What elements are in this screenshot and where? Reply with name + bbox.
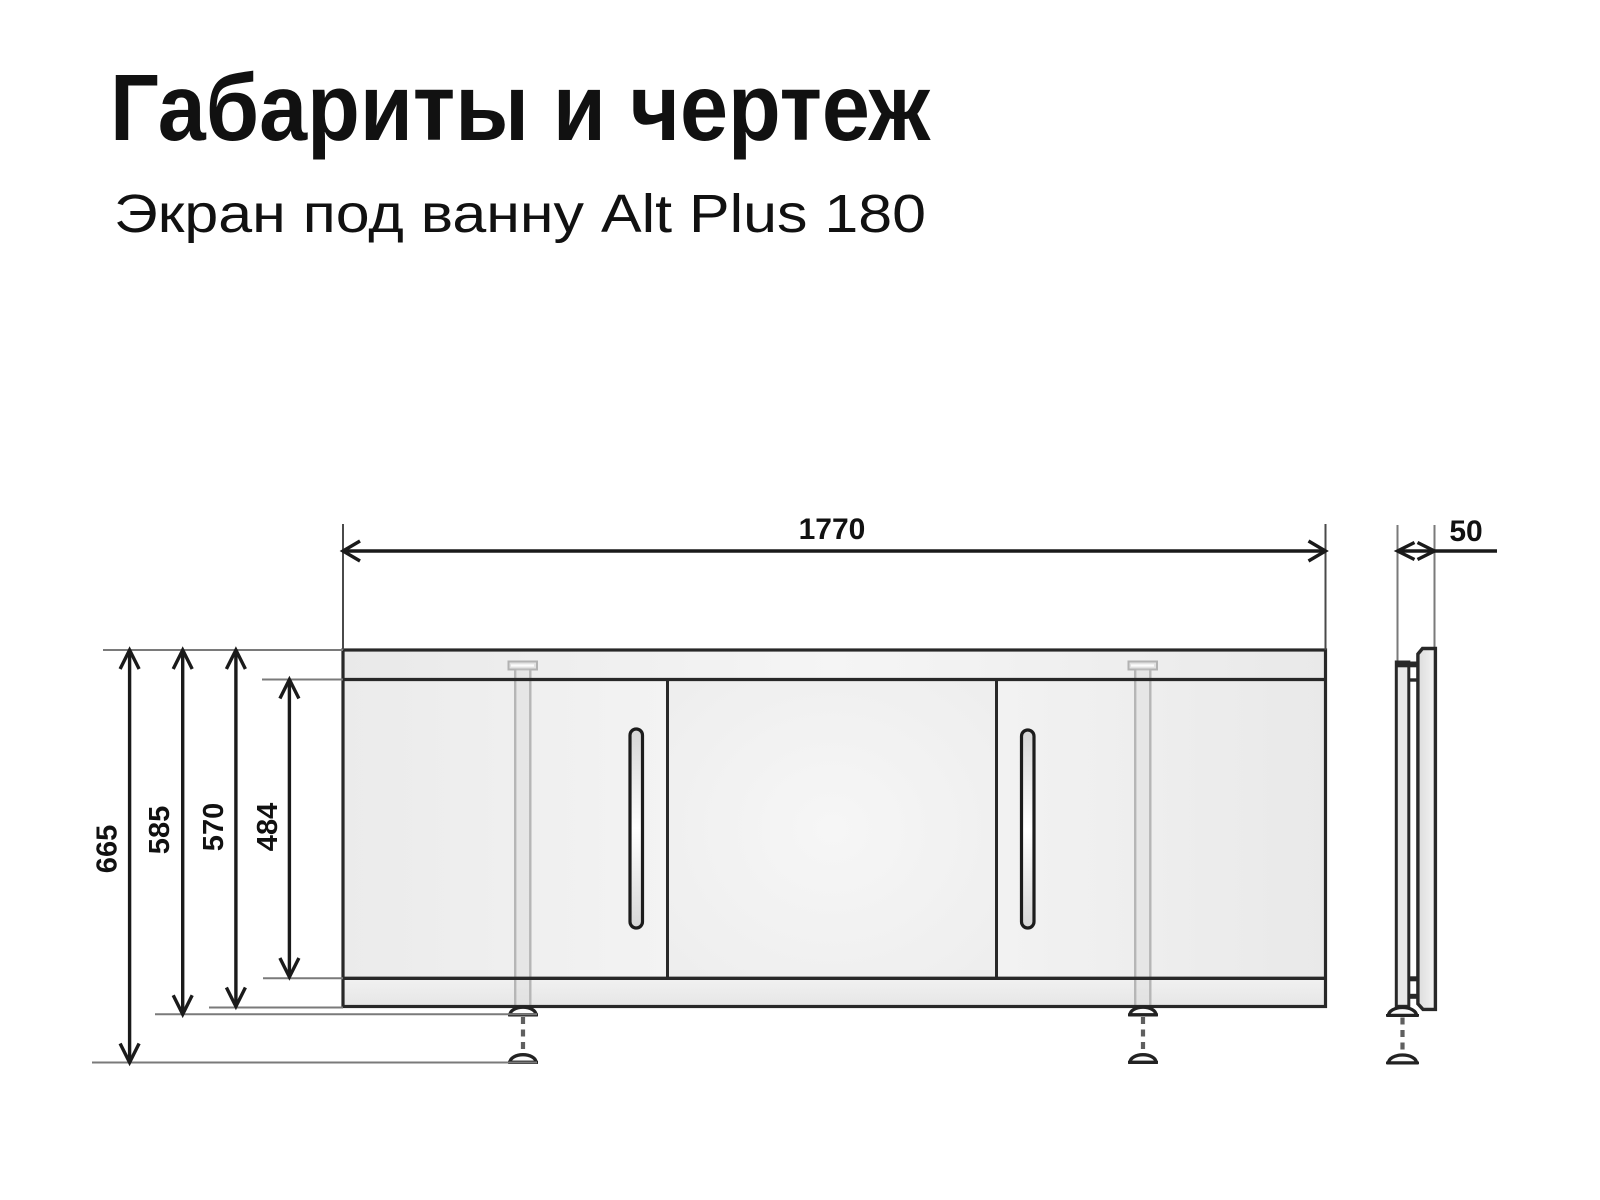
svg-text:Экран под ванну Alt Plus 180: Экран под ванну Alt Plus 180 [114, 184, 926, 244]
svg-text:585: 585 [144, 806, 176, 854]
svg-text:50: 50 [1449, 515, 1482, 548]
svg-text:570: 570 [198, 803, 230, 851]
svg-text:665: 665 [92, 825, 124, 873]
svg-text:1770: 1770 [799, 513, 866, 546]
svg-text:484: 484 [252, 803, 284, 851]
svg-text:Габариты и чертеж: Габариты и чертеж [110, 55, 931, 161]
